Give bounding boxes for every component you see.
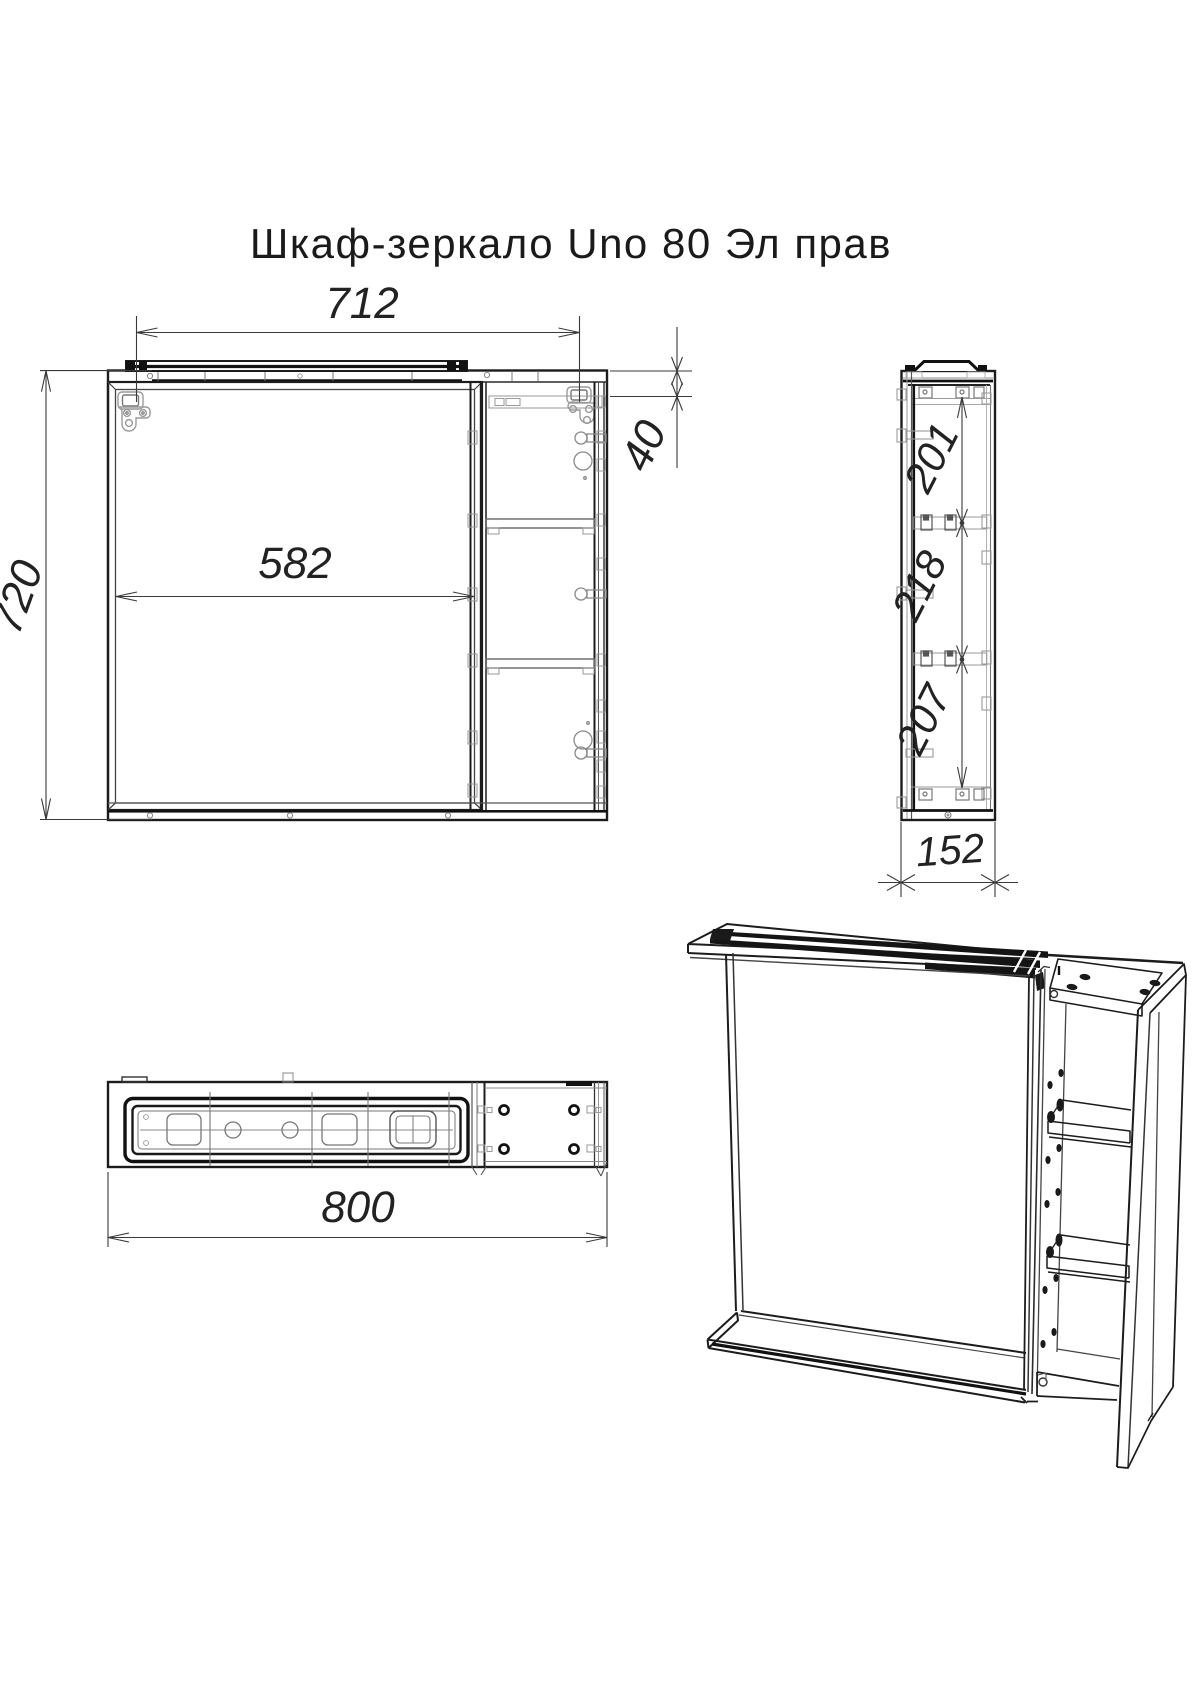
svg-text:Шкаф-зеркало Uno 80 Эл прав: Шкаф-зеркало Uno 80 Эл прав [250, 220, 892, 267]
svg-text:800: 800 [321, 1183, 395, 1232]
svg-text:152: 152 [914, 825, 986, 876]
svg-text:712: 712 [325, 279, 398, 328]
svg-text:582: 582 [258, 539, 331, 588]
